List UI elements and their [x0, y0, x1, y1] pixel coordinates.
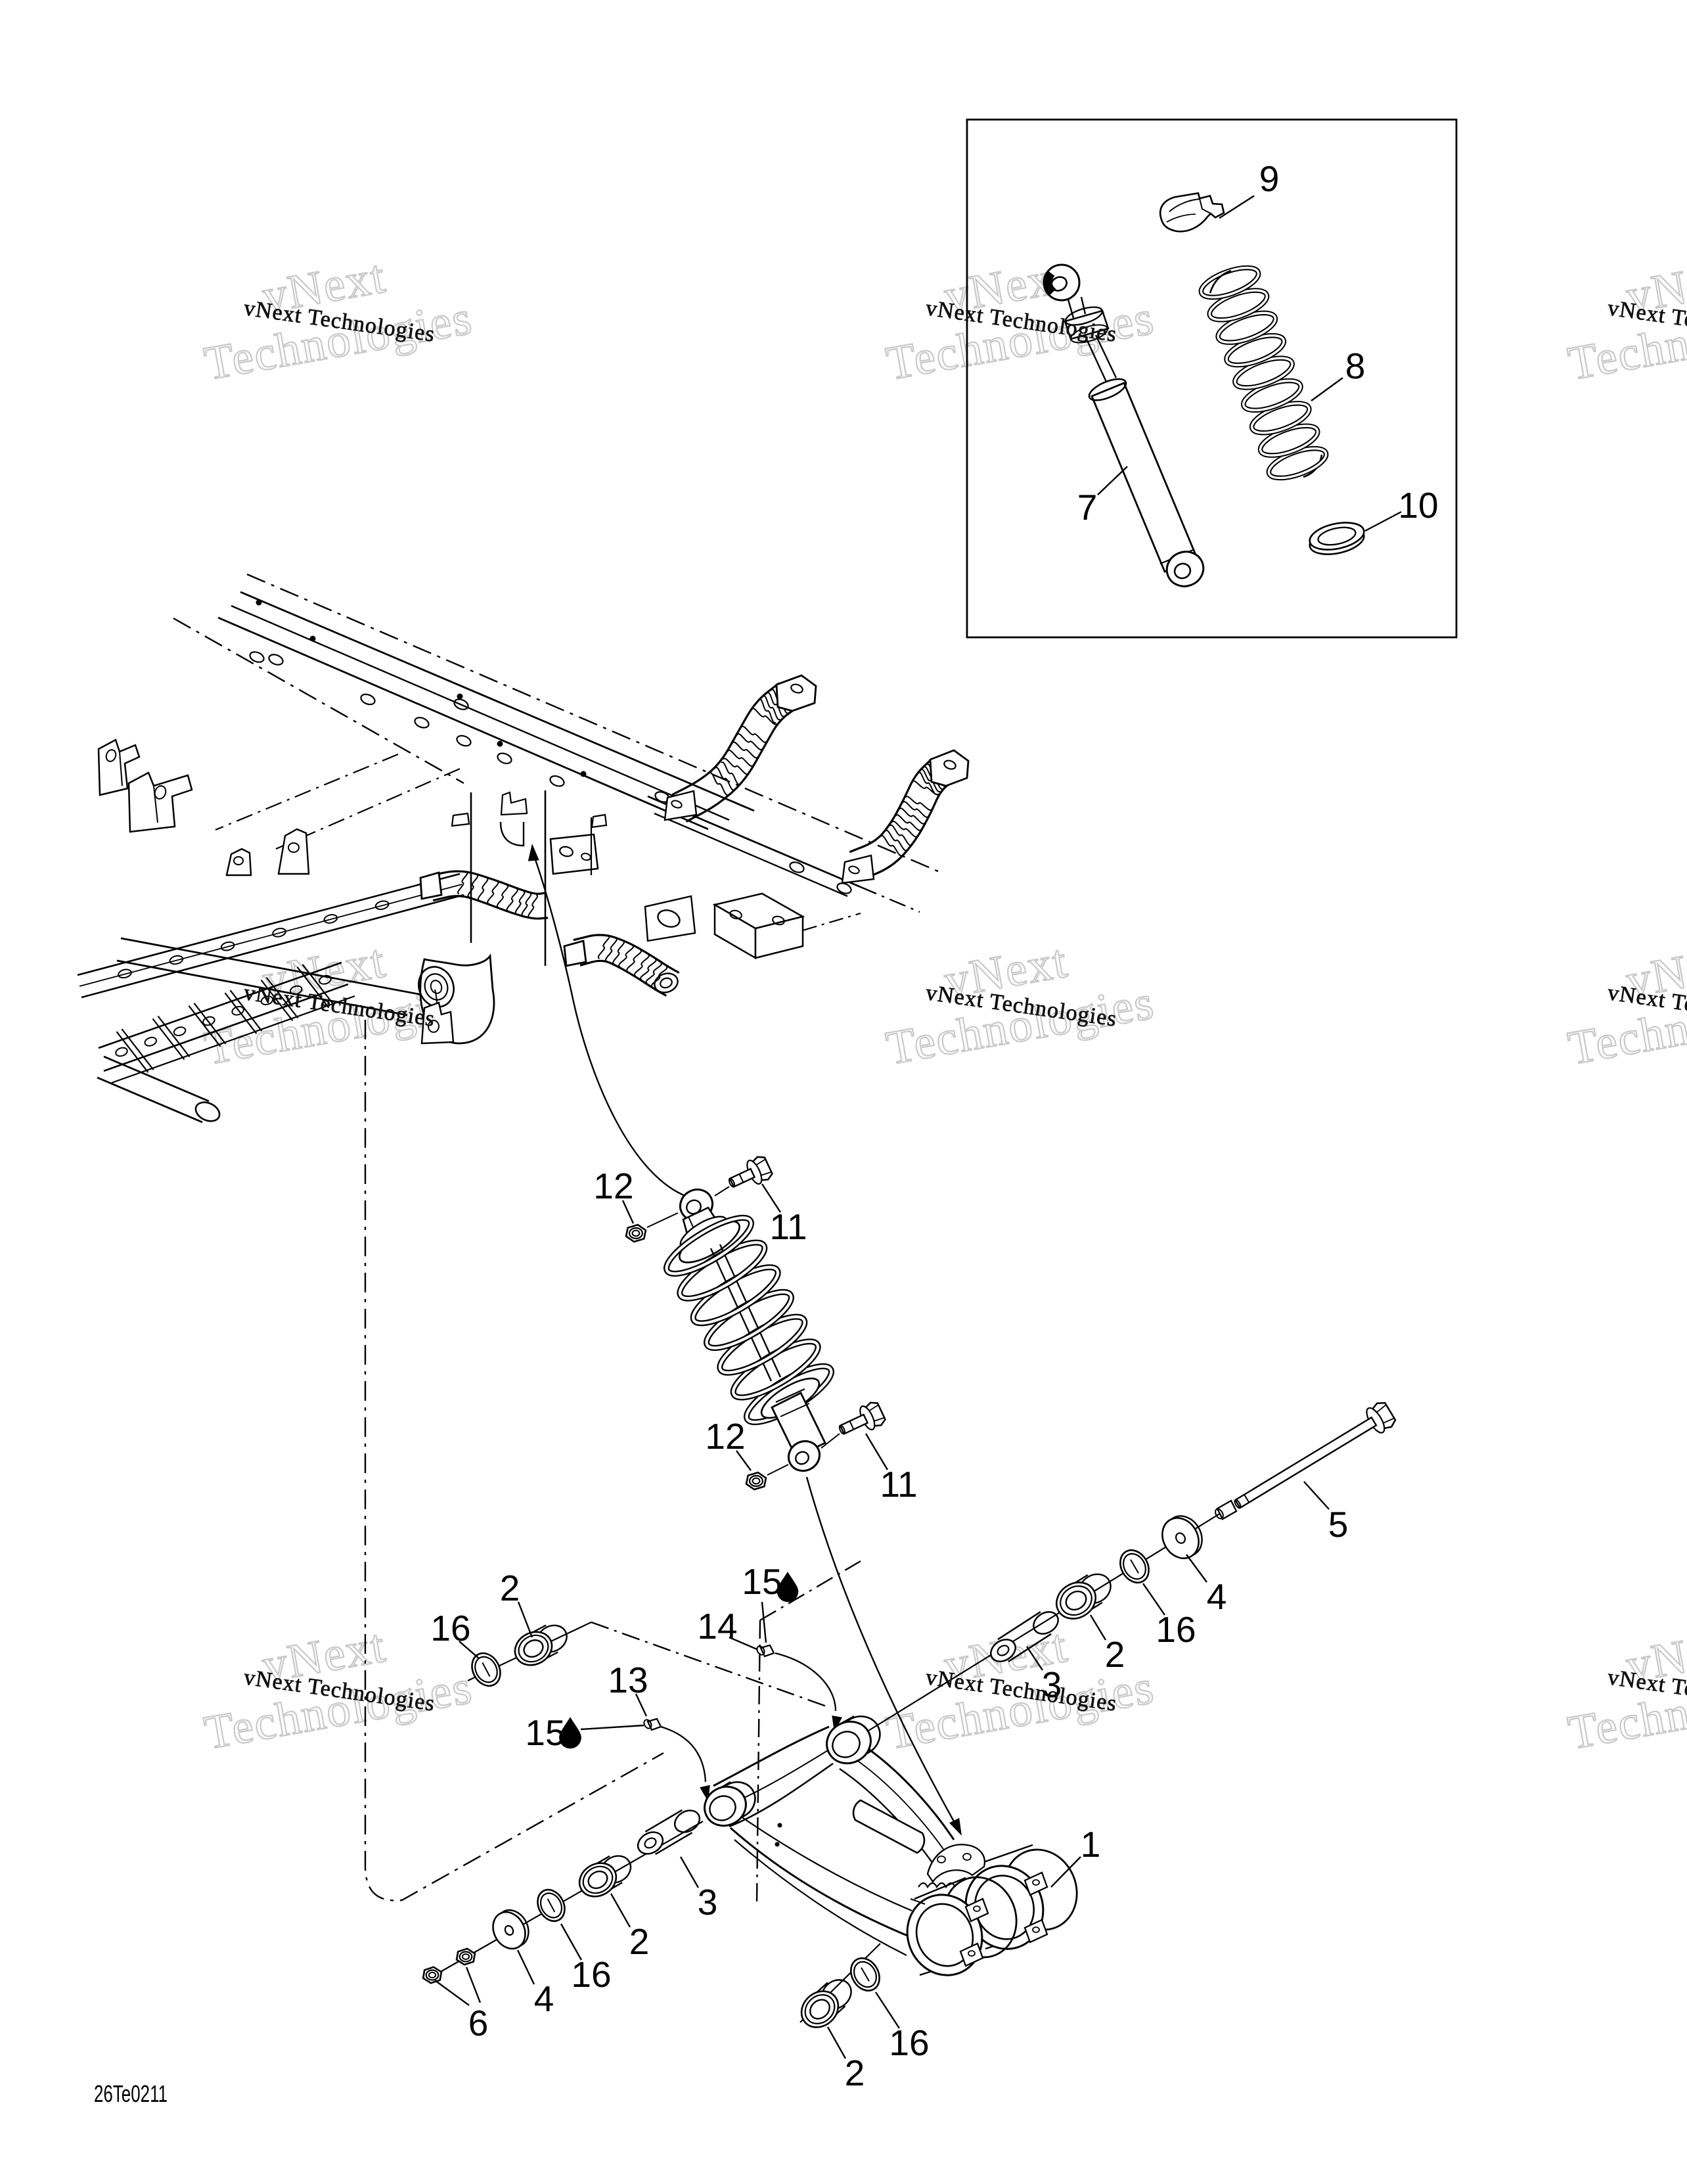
svg-text:4: 4 — [1207, 1576, 1227, 1617]
svg-text:2: 2 — [845, 2053, 865, 2093]
svg-text:2: 2 — [629, 1921, 650, 1962]
svg-text:26Te0211: 26Te0211 — [94, 2080, 168, 2107]
svg-text:2: 2 — [500, 1568, 520, 1608]
svg-text:11: 11 — [769, 1206, 807, 1247]
svg-text:2: 2 — [1105, 1634, 1125, 1675]
svg-text:7: 7 — [1077, 487, 1098, 528]
svg-text:16: 16 — [430, 1608, 470, 1649]
svg-text:15: 15 — [742, 1561, 782, 1602]
svg-text:16: 16 — [1156, 1609, 1196, 1650]
svg-text:3: 3 — [698, 1882, 718, 1922]
svg-text:9: 9 — [1259, 158, 1280, 199]
svg-text:8: 8 — [1345, 346, 1366, 386]
svg-text:4: 4 — [534, 1978, 554, 2019]
svg-text:5: 5 — [1328, 1504, 1349, 1545]
svg-text:16: 16 — [571, 1954, 611, 1995]
svg-text:11: 11 — [880, 1464, 917, 1505]
svg-text:15: 15 — [525, 1712, 565, 1753]
svg-text:12: 12 — [705, 1416, 745, 1457]
svg-text:14: 14 — [697, 1606, 737, 1647]
svg-text:1: 1 — [1081, 1824, 1101, 1865]
svg-text:10: 10 — [1398, 485, 1438, 526]
svg-text:6: 6 — [468, 2003, 489, 2043]
svg-text:13: 13 — [608, 1660, 648, 1700]
svg-text:16: 16 — [889, 2022, 929, 2063]
svg-text:12: 12 — [593, 1166, 633, 1206]
